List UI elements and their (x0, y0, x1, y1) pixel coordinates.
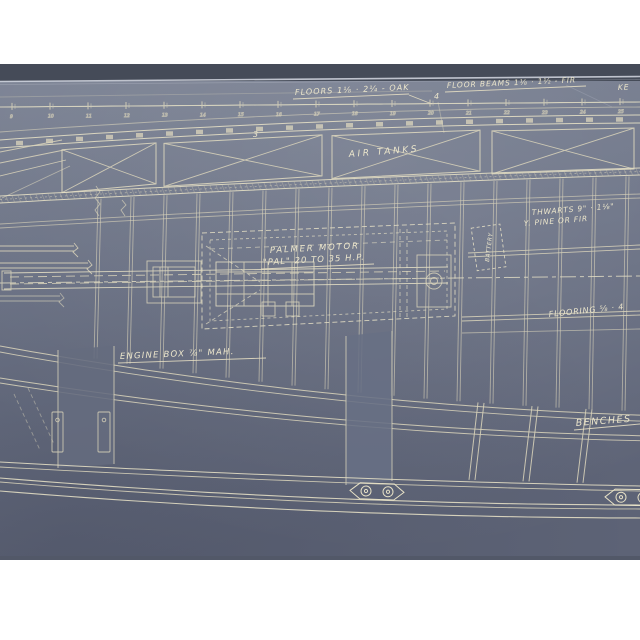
scale-tick-label: 23 (542, 110, 548, 116)
label-station-3: 3 (253, 130, 258, 139)
scale-tick-label: 22 (504, 110, 510, 116)
scale-tick-label: 11 (86, 113, 92, 119)
scale-tick-label: 25 (618, 109, 624, 115)
boat-blueprint-drawing: 910111213141516171819202122232425 FLOORS… (0, 0, 640, 640)
label-station-4: 4 (434, 92, 439, 101)
scale-tick-label: 10 (48, 114, 54, 120)
scale-tick-label: 21 (466, 110, 472, 116)
scale-tick-label: 16 (276, 112, 282, 118)
scale-tick-label: 14 (200, 112, 206, 118)
sheet-bottom-edge (0, 556, 640, 560)
label-keel-partial: KE (618, 82, 630, 92)
blueprint-photo: 910111213141516171819202122232425 FLOORS… (0, 0, 640, 640)
scale-tick-label: 24 (580, 109, 586, 115)
scale-tick-label: 13 (162, 113, 168, 119)
scale-tick-label: 18 (352, 111, 358, 117)
scale-tick-label: 9 (10, 114, 13, 120)
scale-tick-label: 20 (428, 111, 434, 117)
scale-tick-label: 12 (124, 113, 130, 119)
